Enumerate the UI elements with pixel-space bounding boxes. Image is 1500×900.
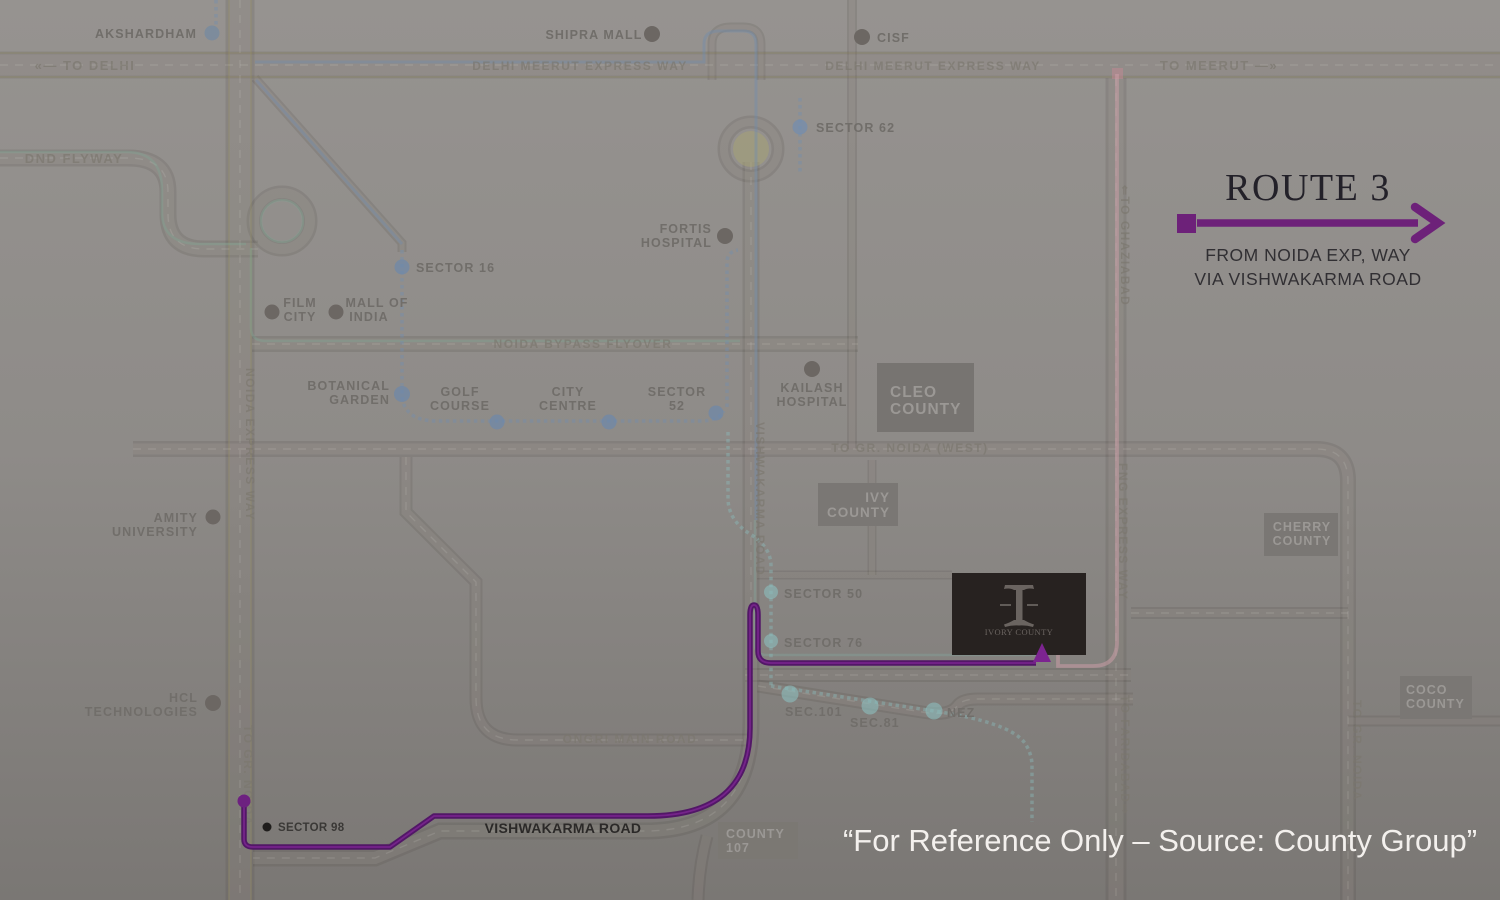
svg-text:VISHWAKARMA ROAD: VISHWAKARMA ROAD — [753, 422, 767, 576]
svg-text:NEZ: NEZ — [947, 706, 975, 720]
svg-text:BOTANICAL: BOTANICAL — [307, 379, 390, 393]
svg-text:CENTRE: CENTRE — [539, 399, 597, 413]
svg-text:TO GR. NOIDA: TO GR. NOIDA — [1350, 700, 1364, 801]
svg-text:ROUTE 3: ROUTE 3 — [1225, 167, 1391, 209]
svg-text:DELHI MEERUT EXPRESS WAY: DELHI MEERUT EXPRESS WAY — [825, 59, 1041, 73]
svg-text:TECHNOLOGIES: TECHNOLOGIES — [85, 705, 198, 719]
svg-text:SECTOR 62: SECTOR 62 — [816, 121, 895, 135]
svg-text:COUNTY: COUNTY — [1273, 534, 1332, 548]
svg-text:KAILASH: KAILASH — [780, 381, 843, 395]
svg-text:FORTIS: FORTIS — [660, 222, 712, 236]
svg-text:CISF: CISF — [877, 31, 910, 45]
svg-text:COCO: COCO — [1406, 683, 1448, 697]
svg-text:SECTOR 16: SECTOR 16 — [416, 261, 495, 275]
svg-text:SECTOR: SECTOR — [648, 385, 706, 399]
svg-text:HCL: HCL — [169, 691, 198, 705]
svg-text:NOIDA EXPRESS WAY: NOIDA EXPRESS WAY — [243, 368, 257, 521]
svg-text:CHERRY: CHERRY — [1273, 520, 1331, 534]
svg-text:HOSPITAL: HOSPITAL — [776, 395, 847, 409]
svg-text:SECTOR 98: SECTOR 98 — [278, 822, 345, 834]
svg-text:ONGRI MAIN ROAD: ONGRI MAIN ROAD — [563, 732, 698, 746]
svg-text:FILM: FILM — [283, 296, 317, 310]
svg-text:CITY: CITY — [284, 310, 317, 324]
svg-text:VIA VISHWAKARMA ROAD: VIA VISHWAKARMA ROAD — [1194, 269, 1421, 289]
svg-text:IVORY COUNTY: IVORY COUNTY — [985, 627, 1053, 637]
svg-text:COUNTY: COUNTY — [1406, 697, 1465, 711]
svg-text:CITY: CITY — [552, 385, 585, 399]
svg-text:“For Reference Only – Source:: “For Reference Only – Source: County Gro… — [843, 823, 1477, 858]
svg-text:VISHWAKARMA ROAD: VISHWAKARMA ROAD — [485, 820, 642, 836]
svg-text:GARDEN: GARDEN — [329, 393, 390, 407]
svg-text:SECTOR 50: SECTOR 50 — [784, 587, 863, 601]
svg-text:SECTOR 76: SECTOR 76 — [784, 636, 863, 650]
svg-text:DELHI MEERUT EXPRESS WAY: DELHI MEERUT EXPRESS WAY — [472, 59, 688, 73]
svg-text:TO GR. NOIDA (WEST): TO GR. NOIDA (WEST) — [831, 441, 988, 455]
svg-text:COUNTY: COUNTY — [890, 401, 961, 418]
svg-text:GOLF: GOLF — [440, 385, 479, 399]
svg-text:CLEO: CLEO — [890, 384, 937, 401]
svg-text:COURSE: COURSE — [430, 399, 490, 413]
svg-text:FNG EXPRESS WAY: FNG EXPRESS WAY — [1116, 463, 1130, 600]
svg-text:MALL OF: MALL OF — [345, 296, 408, 310]
svg-text:52: 52 — [669, 399, 685, 413]
svg-text:TO FARIDABAD⇒: TO FARIDABAD⇒ — [1118, 695, 1132, 815]
svg-text:INDIA: INDIA — [349, 310, 389, 324]
svg-text:⇐TO GHAZIABAD: ⇐TO GHAZIABAD — [1118, 185, 1132, 306]
svg-text:AMITY: AMITY — [154, 511, 198, 525]
svg-text:FROM NOIDA EXP, WAY: FROM NOIDA EXP, WAY — [1205, 245, 1411, 265]
svg-text:DND FLYWAY: DND FLYWAY — [25, 151, 124, 166]
svg-text:SEC.81: SEC.81 — [850, 716, 900, 730]
svg-text:107: 107 — [726, 841, 750, 855]
svg-text:NOIDA BYPASS FLYOVER: NOIDA BYPASS FLYOVER — [494, 337, 673, 351]
svg-text:UNIVERSITY: UNIVERSITY — [112, 525, 198, 539]
svg-text:TO MEERUT —»: TO MEERUT —» — [1160, 58, 1278, 73]
svg-text:SEC.101: SEC.101 — [785, 705, 843, 719]
svg-text:«— TO DELHI: «— TO DELHI — [35, 58, 136, 73]
svg-text:COUNTY: COUNTY — [827, 505, 890, 520]
svg-text:SHIPRA MALL: SHIPRA MALL — [545, 28, 642, 42]
svg-text:COUNTY: COUNTY — [726, 827, 785, 841]
svg-text:AKSHARDHAM: AKSHARDHAM — [95, 27, 197, 41]
svg-text:IVY: IVY — [865, 490, 890, 505]
svg-text:HOSPITAL: HOSPITAL — [641, 236, 712, 250]
